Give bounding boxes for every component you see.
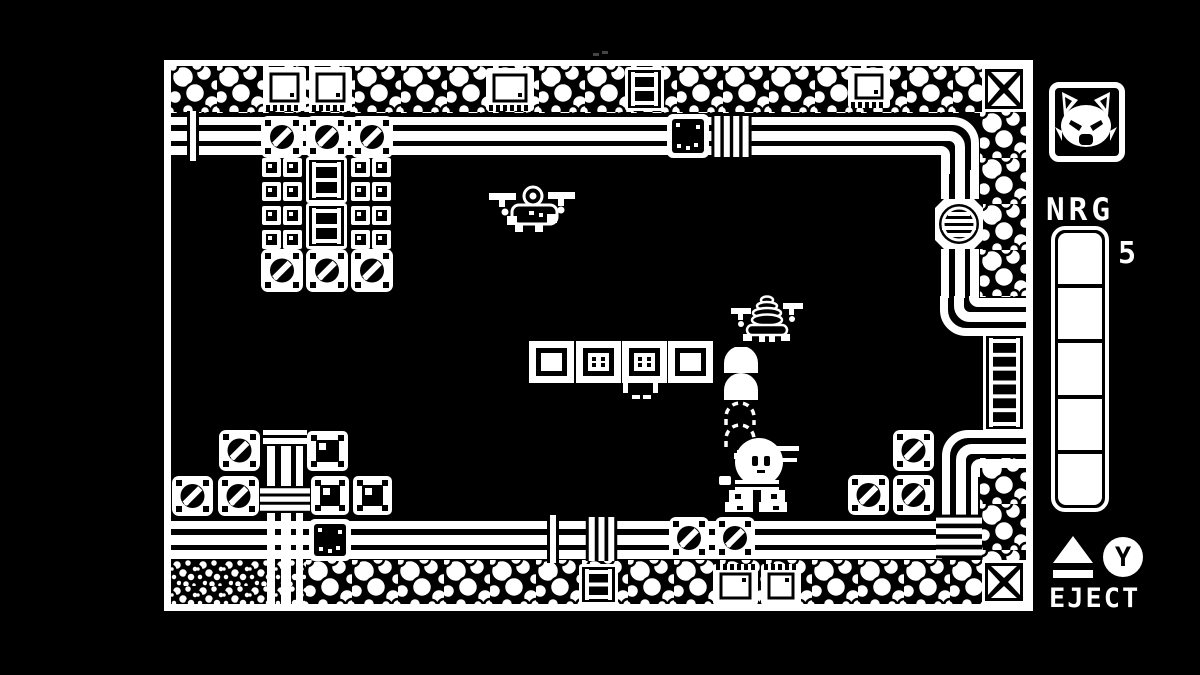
y-button-icon: Y (1103, 537, 1143, 577)
energy-segment (1058, 454, 1102, 505)
energy-bar (1051, 226, 1109, 512)
energy-segment (1058, 288, 1102, 339)
game-screen: NRG 5 Y EJECT (0, 0, 1200, 675)
energy-segment (1058, 233, 1102, 284)
energy-segment (1058, 399, 1102, 450)
dust-particle (593, 51, 609, 57)
energy-label: NRG (1046, 192, 1114, 228)
game-viewport[interactable] (164, 60, 1033, 611)
energy-value: 5 (1118, 236, 1136, 271)
energy-bar-segments (1058, 233, 1102, 505)
eject-symbol-icon (1053, 536, 1093, 580)
avatar-frame (1049, 82, 1125, 162)
cat-face-icon (1055, 140, 1118, 159)
eject-label: EJECT (1049, 583, 1140, 614)
energy-segment (1058, 343, 1102, 394)
